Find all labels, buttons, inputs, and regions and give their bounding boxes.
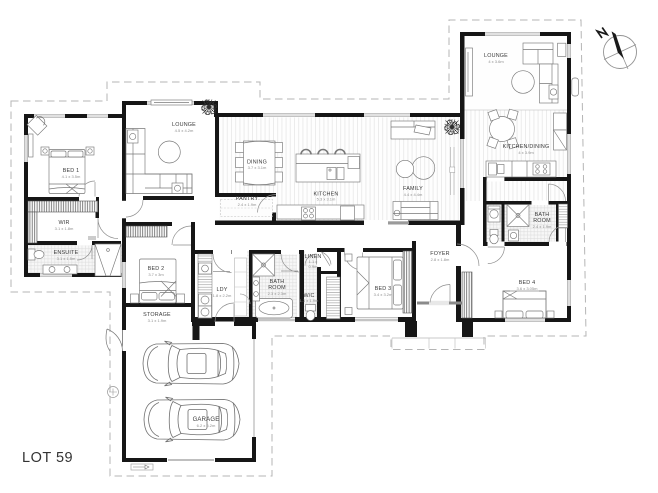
svg-text:4 x 3.6m: 4 x 3.6m <box>488 59 504 64</box>
svg-text:6.2 x 6.2m: 6.2 x 6.2m <box>197 423 216 428</box>
svg-text:3.1 x 1.8m: 3.1 x 1.8m <box>55 226 74 231</box>
svg-text:4 x 3.9m: 4 x 3.9m <box>518 150 534 155</box>
svg-text:2.4 x 1.9m: 2.4 x 1.9m <box>238 202 257 207</box>
svg-text:4.5 x 4.2m: 4.5 x 4.2m <box>175 128 194 133</box>
svg-text:1.8 x 2.2m: 1.8 x 2.2m <box>213 293 232 298</box>
svg-text:4.4 x 4.4m: 4.4 x 4.4m <box>404 192 423 197</box>
svg-text:3.6 x 3.05m: 3.6 x 3.05m <box>517 286 539 291</box>
svg-text:LOT 59: LOT 59 <box>22 450 73 466</box>
svg-text:3.7 x 3.1m: 3.7 x 3.1m <box>248 165 267 170</box>
svg-text:2.3 x 2.3m: 2.3 x 2.3m <box>268 291 287 296</box>
svg-text:4.1 x 3.5m: 4.1 x 3.5m <box>62 174 81 179</box>
svg-text:3.1 x 1.9m: 3.1 x 1.9m <box>148 318 167 323</box>
svg-text:5.3 x 3.1m: 5.3 x 3.1m <box>317 197 336 202</box>
svg-text:1.1 x 1.9m: 1.1 x 1.9m <box>300 298 319 303</box>
svg-text:3.1 x 1.5m: 3.1 x 1.5m <box>57 256 76 261</box>
svg-text:3.7 x 3m: 3.7 x 3m <box>148 272 164 277</box>
svg-text:2.8 x 1.8m: 2.8 x 1.8m <box>431 257 450 262</box>
svg-text:3.4 x 3.2m: 3.4 x 3.2m <box>374 292 393 297</box>
svg-text:2.4 x 1.9m: 2.4 x 1.9m <box>533 224 552 229</box>
svg-text:0.9m: 0.9m <box>309 264 319 269</box>
